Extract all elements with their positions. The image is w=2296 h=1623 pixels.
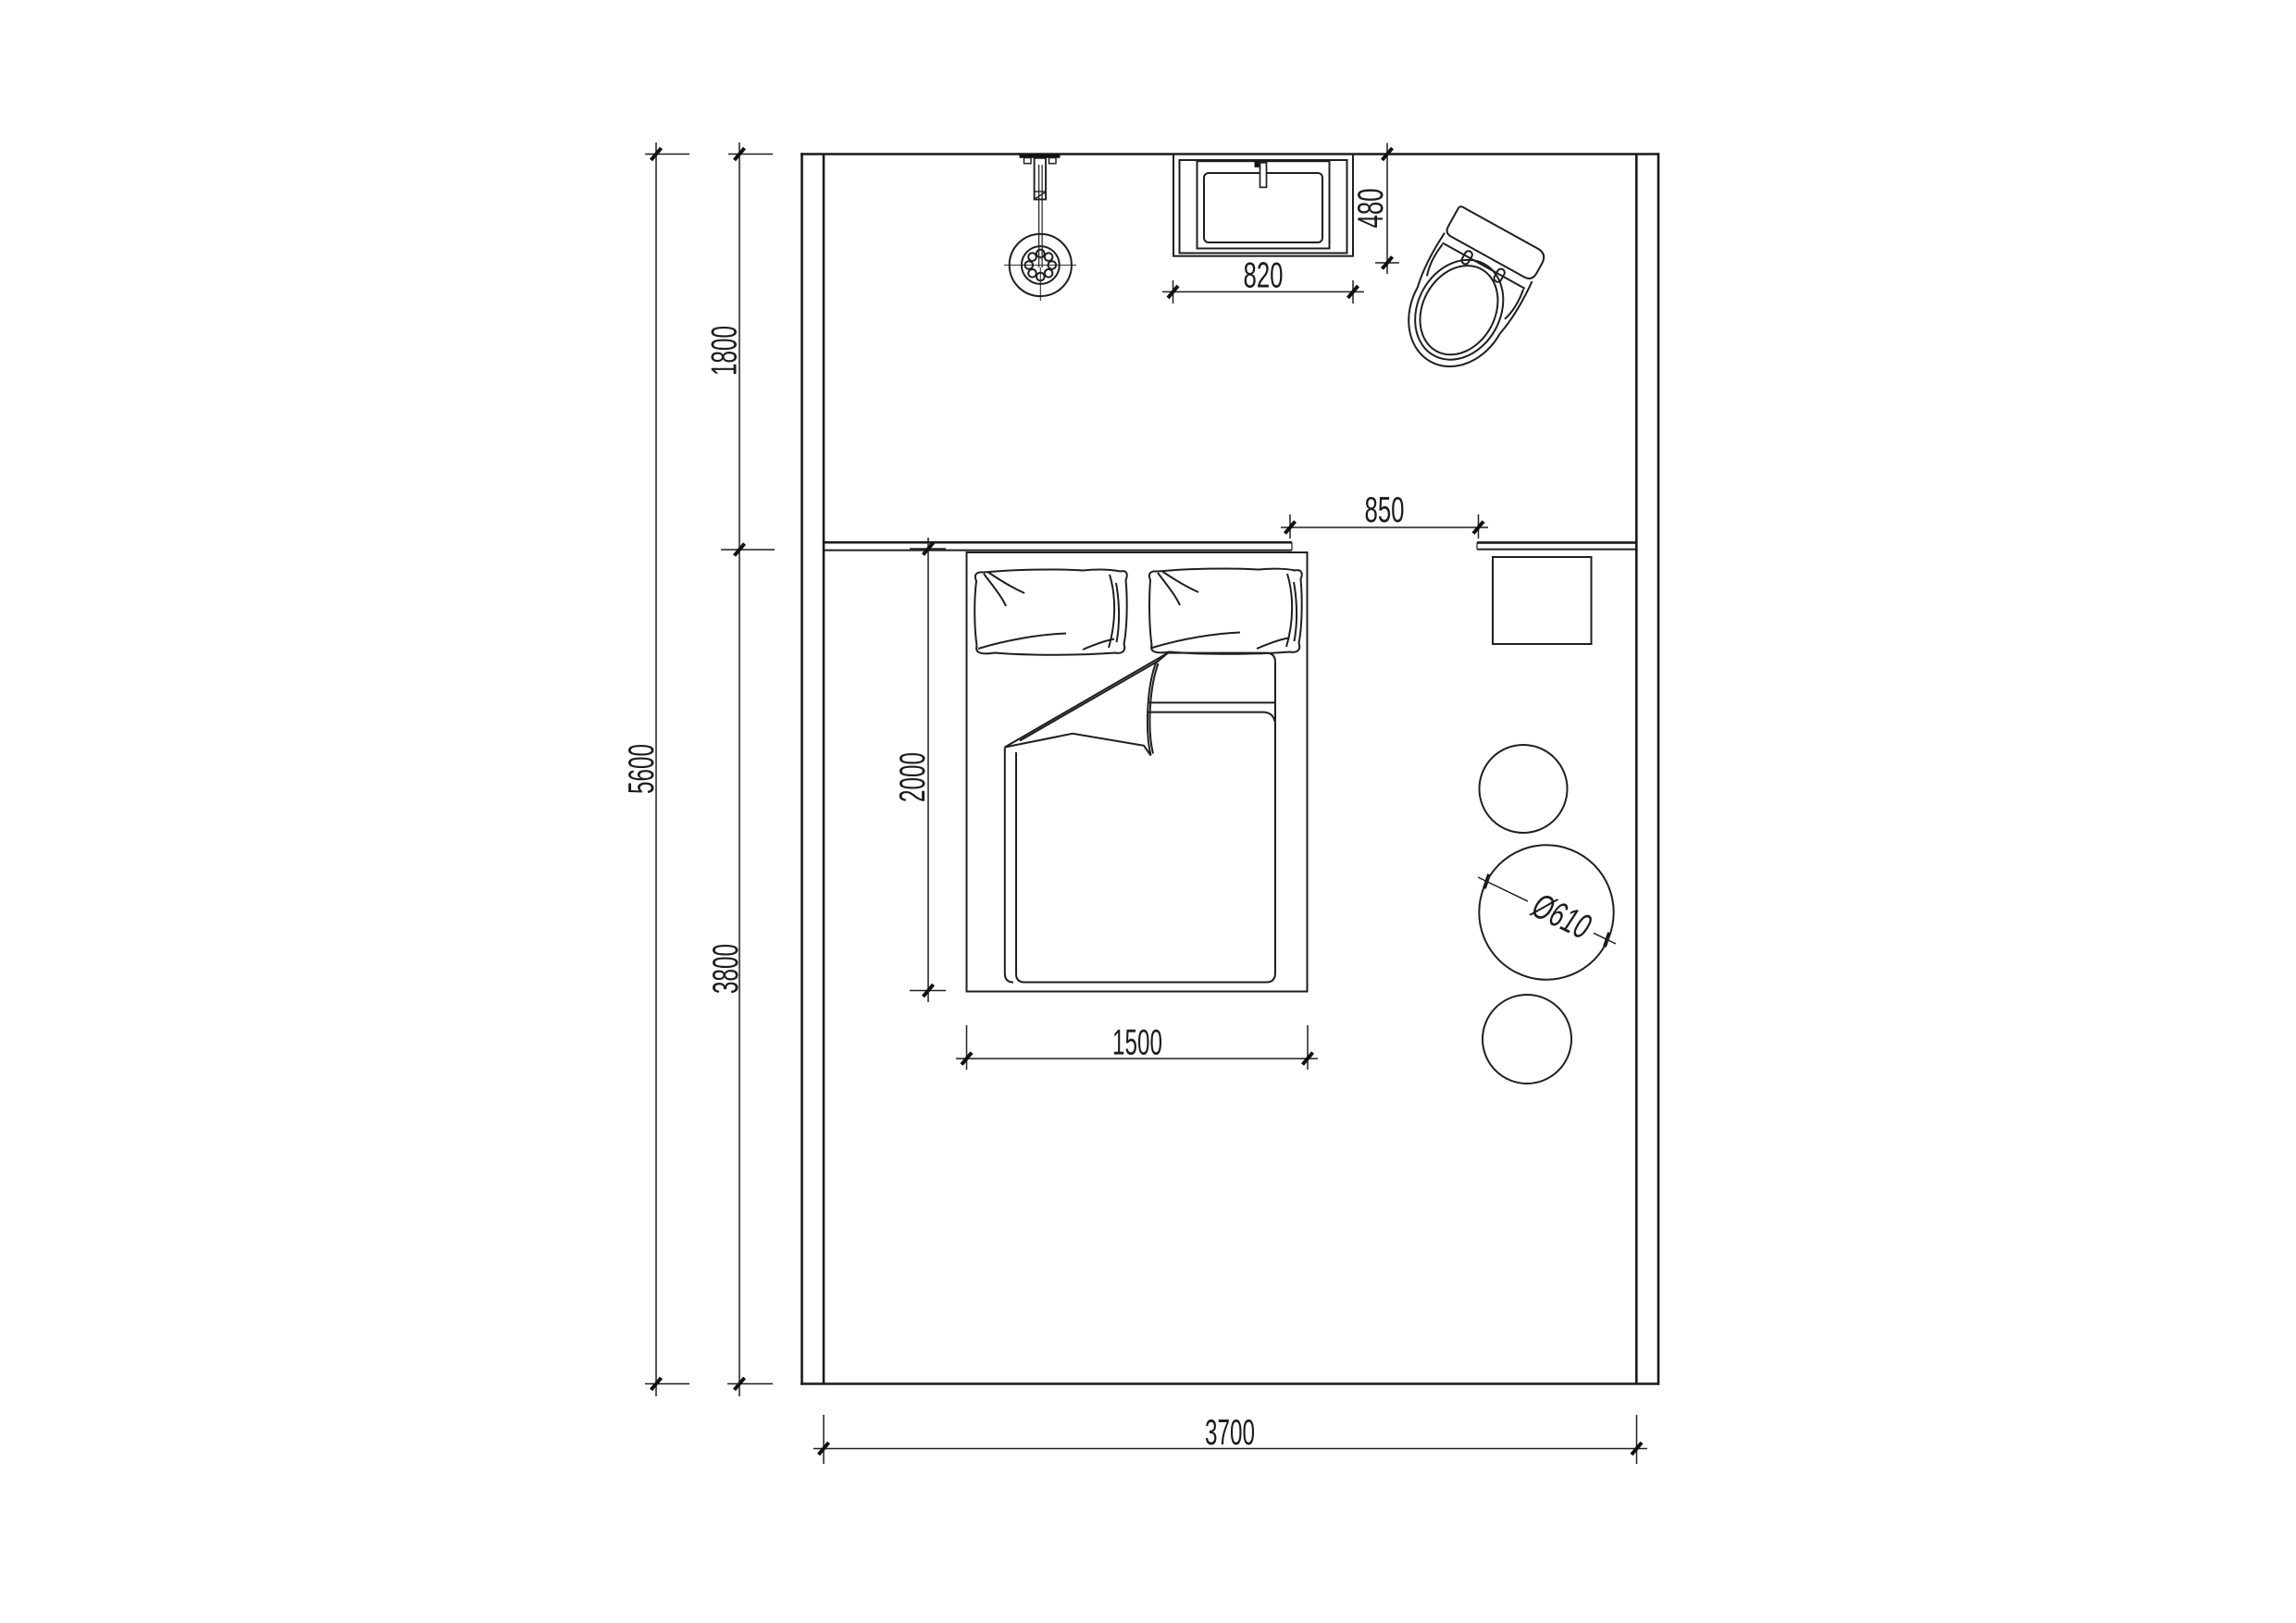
svg-text:1800: 1800 <box>705 326 745 376</box>
svg-text:5600: 5600 <box>622 744 662 794</box>
svg-text:1500: 1500 <box>1112 1023 1162 1063</box>
svg-text:850: 850 <box>1365 490 1405 530</box>
svg-text:2000: 2000 <box>893 752 933 802</box>
svg-text:480: 480 <box>1351 189 1391 229</box>
svg-text:820: 820 <box>1244 256 1284 296</box>
svg-text:3700: 3700 <box>1205 1413 1255 1453</box>
svg-text:3800: 3800 <box>706 944 746 994</box>
